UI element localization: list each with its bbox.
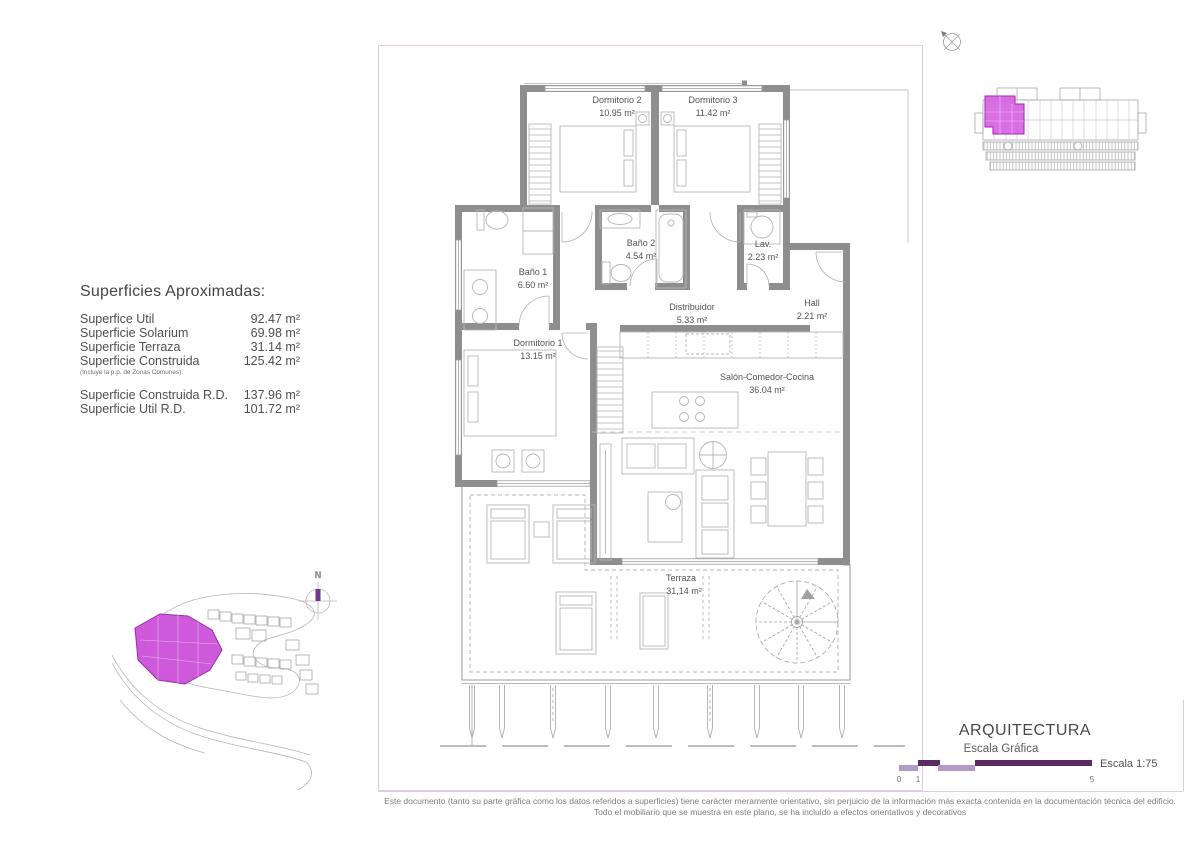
scale-bar: 0 1 5 — [897, 760, 1095, 784]
walls — [455, 85, 850, 565]
scale-tick-1: 1 — [916, 775, 921, 784]
room-label-bano-1: Baño 1 — [519, 267, 548, 277]
pergola-posts — [440, 685, 905, 746]
room-area-terraza: 31,14 m² — [666, 586, 702, 596]
compass-icon — [941, 31, 961, 51]
room-area-dormitorio-3: 11.42 m² — [696, 108, 731, 118]
room-area-lavadero: 2.23 m² — [748, 252, 779, 262]
room-label-dormitorio-3: Dormitorio 3 — [688, 95, 737, 105]
room-label-hall: Hall — [804, 298, 820, 308]
site-plan: N — [112, 570, 337, 790]
site-plan-highlight — [135, 614, 222, 684]
room-label-bano-2: Baño 2 — [627, 238, 656, 248]
north-compass-icon — [299, 582, 337, 620]
room-area-bano-2: 4.54 m² — [626, 251, 657, 261]
spiral-staircase — [756, 581, 838, 663]
room-label-distribuidor: Distribuidor — [669, 302, 715, 312]
key-plan — [941, 31, 1146, 170]
room-label-dormitorio-2: Dormitorio 2 — [592, 95, 641, 105]
room-area-dormitorio-1: 13.15 m² — [520, 351, 556, 361]
room-area-hall: 2.21 m² — [797, 311, 828, 321]
key-plan-highlight — [985, 96, 1024, 134]
room-label-dormitorio-1: Dormitorio 1 — [513, 338, 562, 348]
scale-tick-5: 5 — [1090, 775, 1095, 784]
room-label-salon: Salón-Comedor-Cocina — [720, 372, 814, 382]
room-area-bano-1: 6.60 m² — [518, 280, 549, 290]
room-label-terraza: Terraza — [666, 573, 696, 583]
room-area-salon: 36.04 m² — [749, 385, 785, 395]
floor-plan: Dormitorio 2 10.95 m² Dormitorio 3 11.42… — [440, 81, 908, 747]
drawing-canvas: Dormitorio 2 10.95 m² Dormitorio 3 11.42… — [0, 0, 1200, 848]
scale-tick-0: 0 — [897, 775, 902, 784]
room-label-lavadero: Lav. — [755, 239, 771, 249]
room-area-distribuidor: 5.33 m² — [677, 315, 708, 325]
north-label: N — [315, 570, 322, 580]
terrace — [462, 487, 850, 684]
room-area-dormitorio-2: 10.95 m² — [599, 108, 635, 118]
